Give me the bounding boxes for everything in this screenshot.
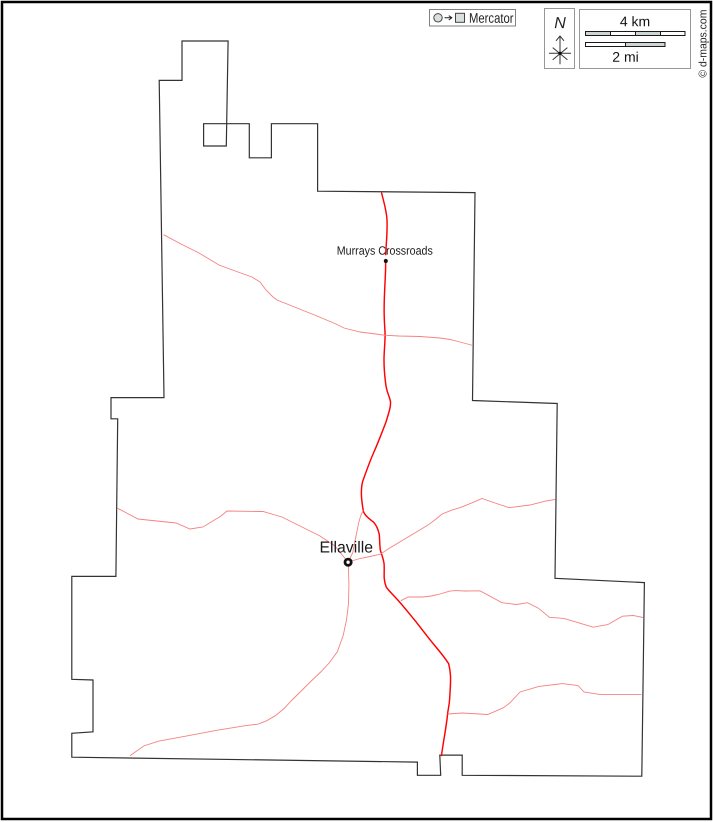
svg-text:4 km: 4 km — [620, 13, 650, 29]
svg-text:© d-maps.com: © d-maps.com — [698, 10, 710, 78]
svg-text:Murrays Crossroads: Murrays Crossroads — [337, 244, 433, 258]
svg-text:N: N — [554, 15, 566, 32]
svg-text:2 mi: 2 mi — [612, 49, 638, 65]
svg-text:Mercator: Mercator — [469, 10, 514, 26]
svg-text:Ellaville: Ellaville — [319, 540, 373, 557]
